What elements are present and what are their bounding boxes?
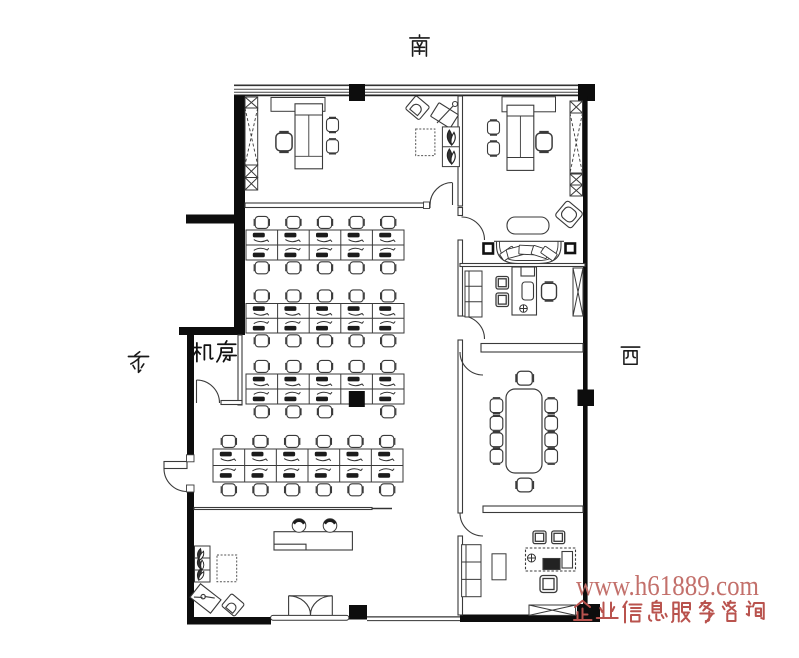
svg-text:www.h61889.com: www.h61889.com xyxy=(576,570,759,602)
